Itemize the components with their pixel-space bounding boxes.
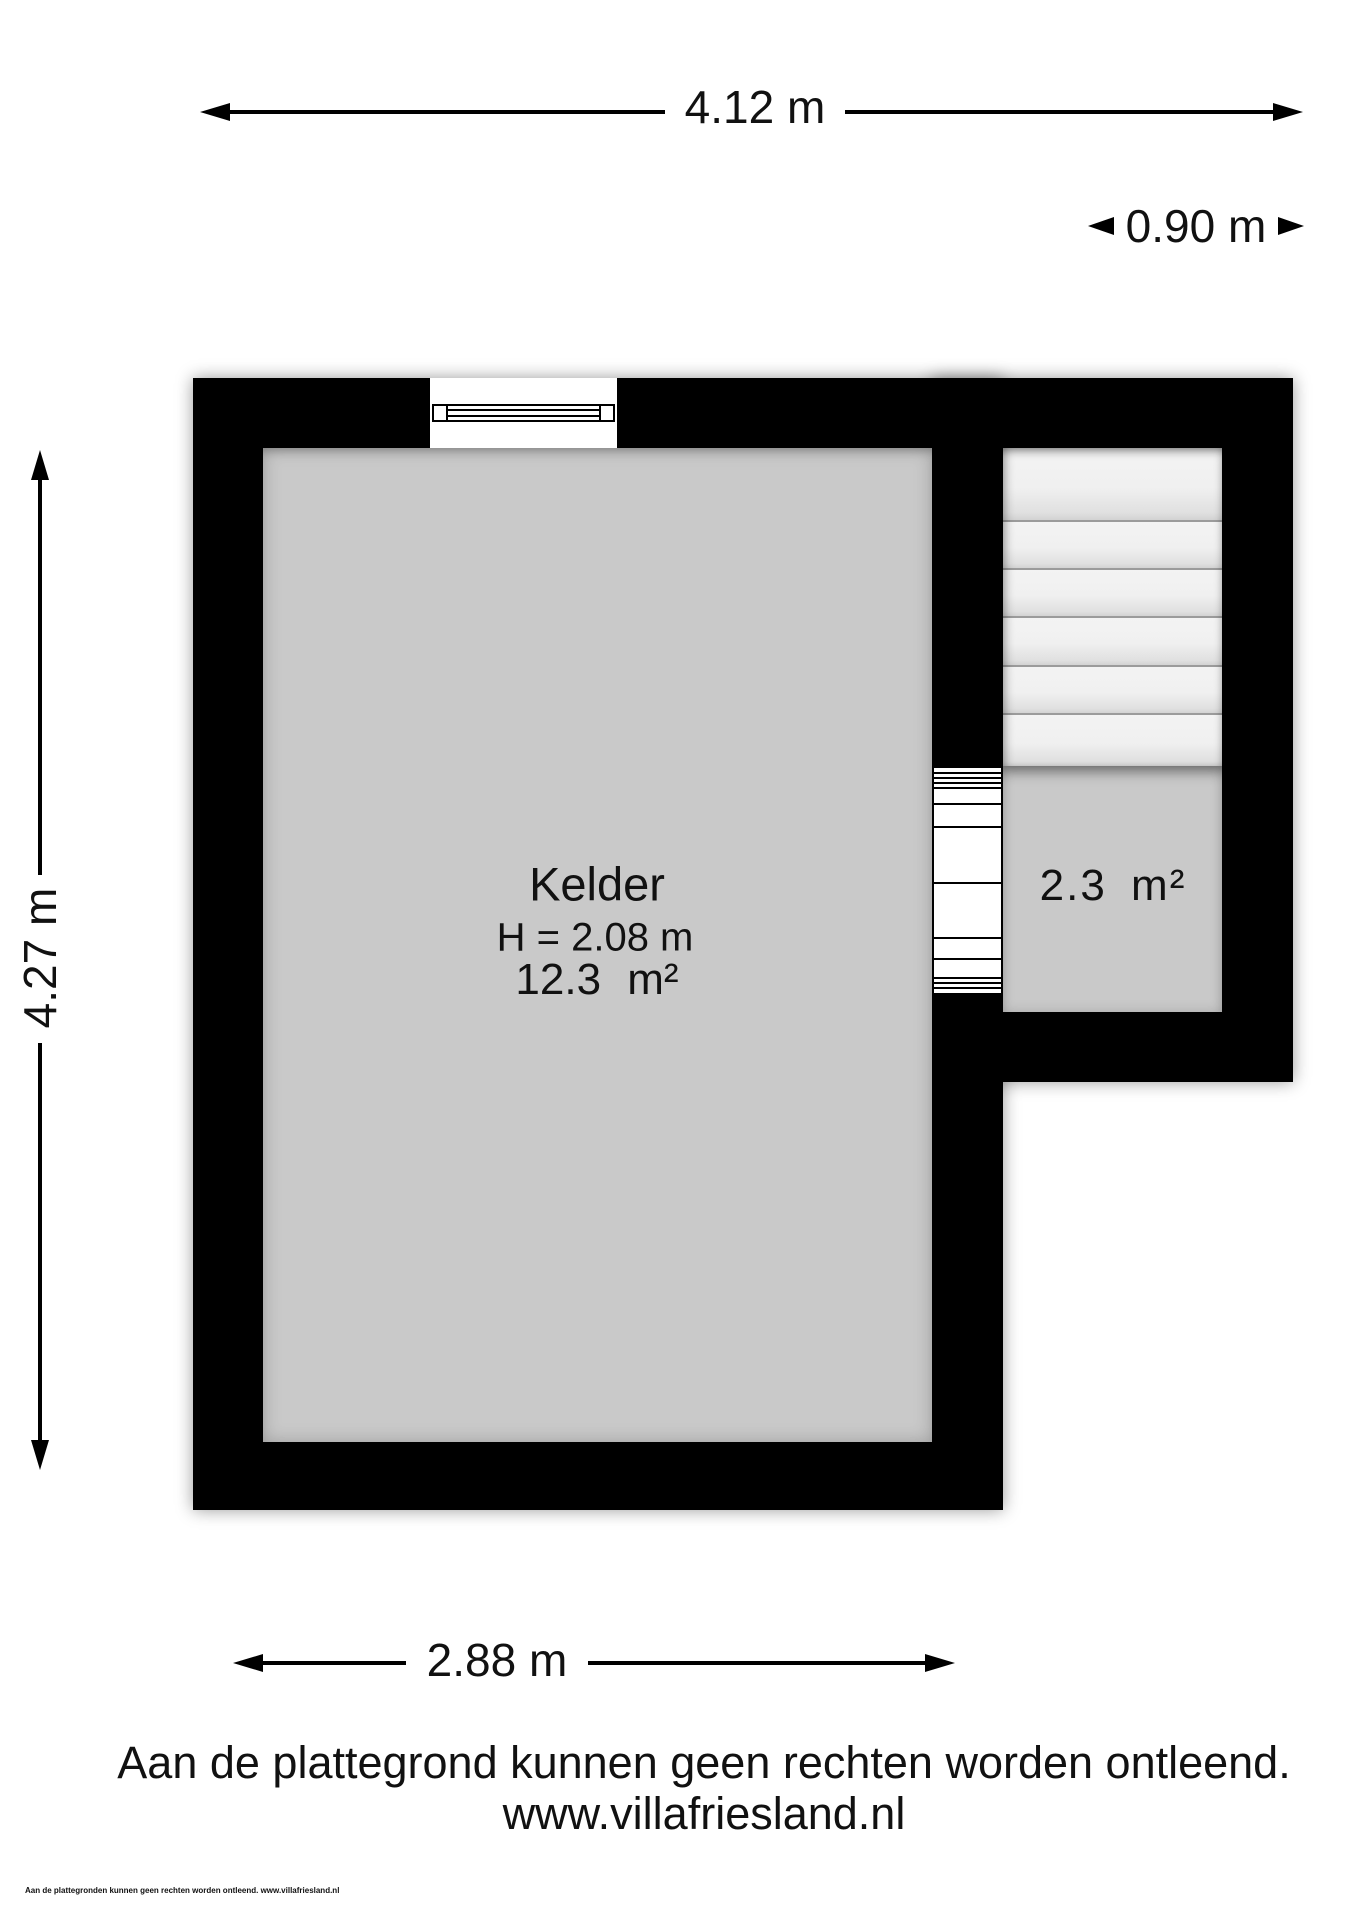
room-stairs-area: 2.3 m²: [1040, 861, 1187, 911]
arrow-up-icon: [31, 450, 49, 480]
footer: Aan de plattegrond kunnen geen rechten w…: [50, 1738, 1358, 1840]
dimension-line: [38, 478, 42, 875]
dimension-line: [38, 1043, 42, 1443]
door-line: [934, 937, 1001, 939]
window-pane-line: [446, 409, 601, 411]
arrow-left-icon: [200, 103, 230, 121]
door-line: [934, 977, 1001, 979]
floor-plan-page: 4.12 m 0.90 m 4.27 m Kelder H =: [0, 0, 1358, 1920]
window-frame: [432, 404, 615, 422]
dimension-line: [845, 110, 1273, 114]
dimension-overall-width-label: 4.12 m: [685, 80, 826, 134]
room-kelder-name: Kelder: [529, 857, 665, 912]
dimension-line: [261, 1661, 406, 1665]
door-line: [934, 787, 1001, 789]
footer-website: www.villafriesland.nl: [50, 1789, 1358, 1840]
arrow-left-icon: [233, 1654, 263, 1672]
window-icon: [430, 378, 617, 448]
dimension-overall-height-label: 4.27 m: [13, 888, 67, 1029]
arrow-right-icon: [925, 1654, 955, 1672]
door-line: [934, 782, 1001, 784]
arrow-down-icon: [31, 1440, 49, 1470]
door-line: [934, 882, 1001, 884]
dimension-room-width-label: 2.88 m: [427, 1633, 568, 1687]
door-line: [934, 826, 1001, 828]
dimension-stair-width-label: 0.90 m: [1126, 199, 1267, 253]
door-line: [934, 982, 1001, 984]
arrow-right-icon: [1273, 103, 1303, 121]
room-kelder-area: 12.3 m²: [515, 955, 678, 1005]
arrow-left-icon: [1088, 217, 1114, 235]
door-line: [934, 803, 1001, 805]
door-icon: [932, 768, 1003, 993]
door-line: [934, 987, 1001, 989]
dimension-line: [228, 110, 665, 114]
room-kelder-height: H = 2.08 m: [497, 916, 694, 961]
door-line: [934, 772, 1001, 774]
fine-print: Aan de plattegronden kunnen geen rechten…: [25, 1886, 339, 1895]
stairwell: [1003, 448, 1222, 766]
door-line: [934, 777, 1001, 779]
door-line: [934, 958, 1001, 960]
arrow-right-icon: [1278, 217, 1304, 235]
window-pane-line: [446, 415, 601, 417]
window-jamb: [599, 406, 613, 420]
stairwell-shadow: [1003, 448, 1222, 766]
dimension-line: [588, 1661, 927, 1665]
footer-disclaimer: Aan de plattegrond kunnen geen rechten w…: [50, 1738, 1358, 1789]
